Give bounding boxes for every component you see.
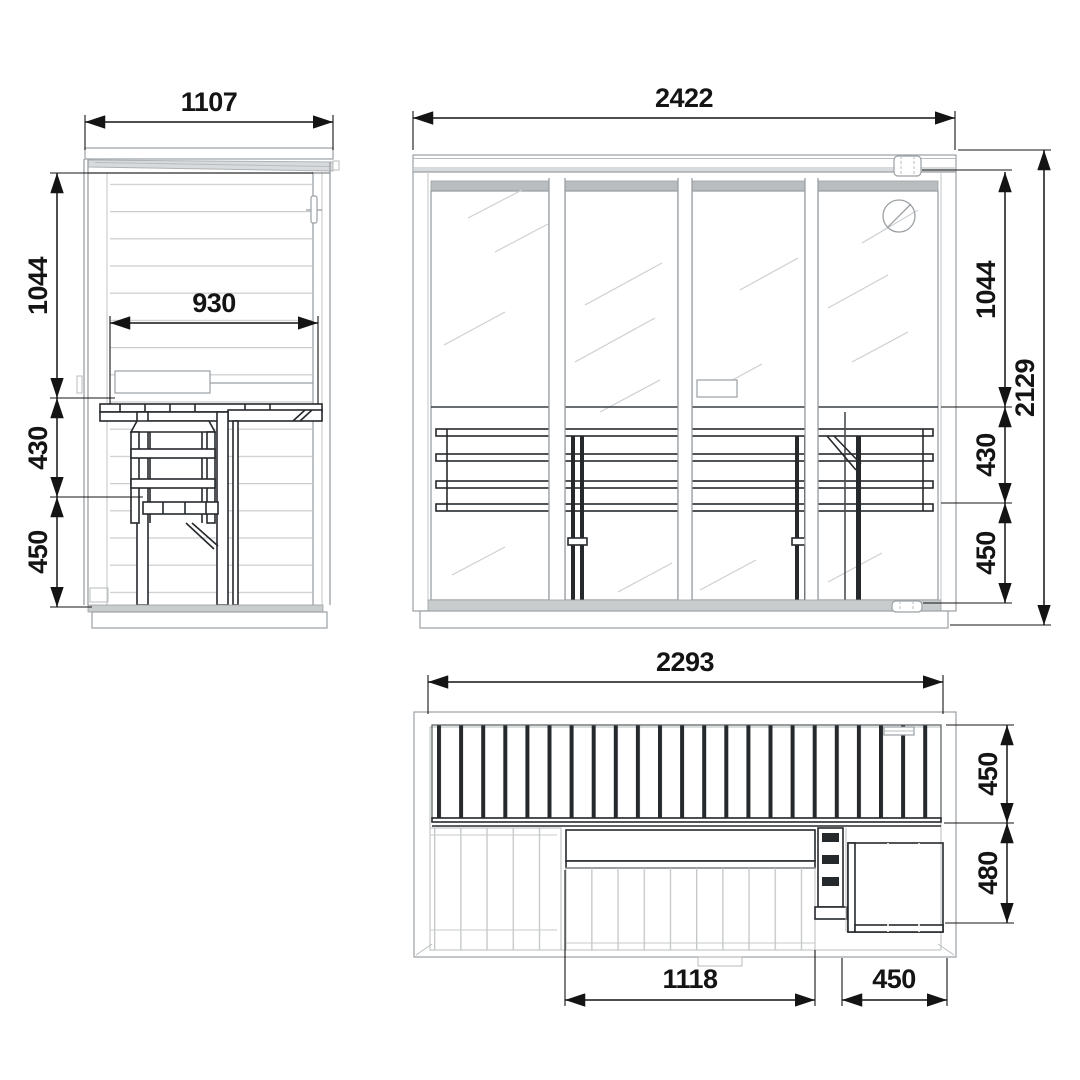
side-plinth	[92, 612, 327, 628]
dim-front-total-width: 2422	[655, 83, 713, 113]
dim-side-lower-height: 450	[23, 530, 53, 574]
dim-front-upper-height: 1044	[971, 260, 1001, 319]
side-roof-slab	[85, 148, 333, 159]
dim-plan-side-bench-depth: 480	[973, 851, 1003, 895]
side-upper-bench	[100, 404, 322, 421]
dim-side-roof-width: 1107	[181, 87, 238, 117]
plan-view	[414, 712, 956, 966]
side-view	[77, 148, 339, 628]
dim-side-bench-length: 930	[192, 288, 236, 318]
dim-front-total-height: 2129	[1010, 358, 1040, 417]
dim-side-bench-spacing: 430	[23, 426, 53, 470]
dim-plan-bench-length: 2293	[656, 647, 715, 677]
plan-upper-bench	[432, 725, 941, 826]
bench-leg	[233, 421, 238, 605]
side-floor-band	[88, 605, 323, 612]
dim-front-mid-height: 430	[971, 433, 1001, 477]
dim-side-wall-height: 1044	[23, 256, 53, 315]
dim-plan-side-bench-width: 450	[872, 964, 916, 994]
front-roof-fascia	[414, 167, 955, 172]
side-left-edge-detail	[77, 376, 82, 393]
side-backrest-board	[115, 371, 210, 393]
front-floor-sill	[428, 600, 941, 611]
dim-plan-upper-bench-depth: 450	[973, 752, 1003, 796]
hinge-bottom-icon	[892, 601, 922, 612]
control-panel	[697, 380, 737, 397]
plan-floor-left	[430, 828, 561, 950]
front-plinth	[420, 611, 948, 628]
front-view	[413, 155, 956, 628]
technical-drawing-page: 1107 930 1044 430 450 2422 1044 430 450	[0, 0, 1080, 1080]
sauna-dimension-drawing: 1107 930 1044 430 450 2422 1044 430 450	[0, 0, 1080, 1080]
side-roof-end-trim	[333, 161, 339, 170]
hinge-top-icon	[894, 156, 921, 176]
dim-front-lower-height: 450	[971, 531, 1001, 575]
dim-plan-lower-bench-length: 1118	[662, 964, 718, 994]
ladder	[815, 828, 847, 932]
